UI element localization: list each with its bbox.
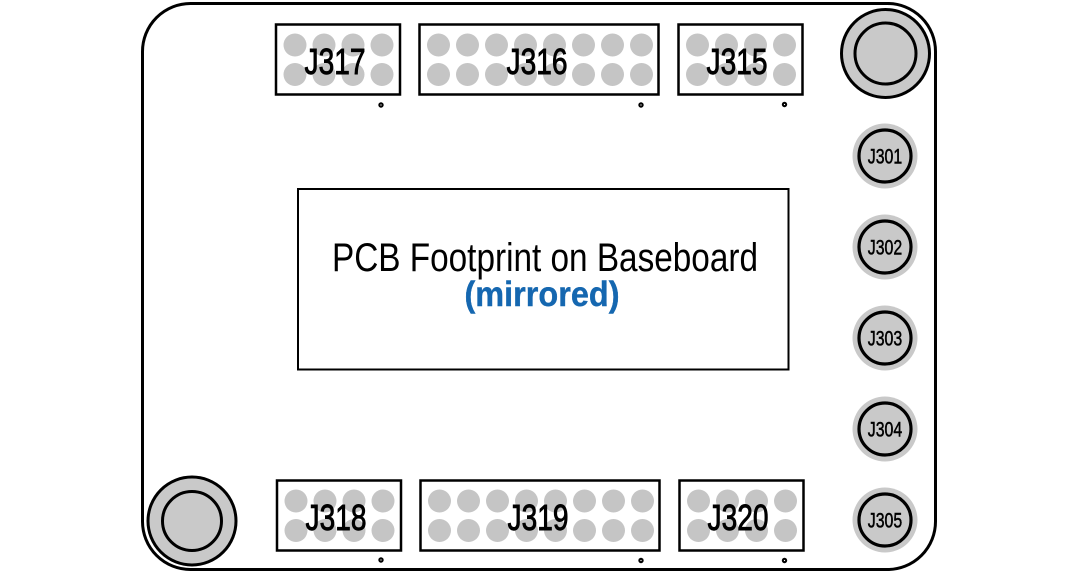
svg-text:J302: J302	[868, 237, 903, 260]
svg-text:J305: J305	[868, 510, 903, 533]
svg-text:J303: J303	[868, 328, 903, 351]
svg-text:J315: J315	[707, 41, 768, 82]
svg-text:J316: J316	[507, 41, 568, 82]
svg-text:J319: J319	[508, 497, 569, 538]
svg-text:J320: J320	[708, 497, 769, 538]
svg-text:J304: J304	[868, 419, 903, 442]
svg-text:J318: J318	[306, 497, 367, 538]
svg-text:J301: J301	[868, 146, 903, 169]
svg-text:(mirrored): (mirrored)	[465, 274, 620, 314]
svg-text:J317: J317	[305, 41, 366, 82]
